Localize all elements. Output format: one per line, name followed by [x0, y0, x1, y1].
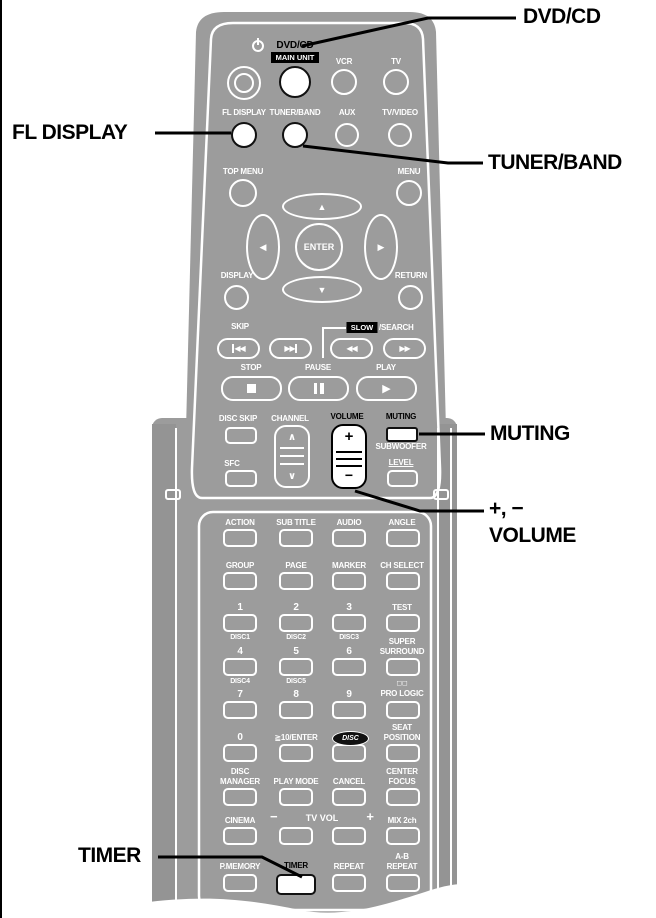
tv-vol-plus-icon: + — [366, 812, 374, 821]
callout-tuner-band: TUNER/BAND — [488, 151, 622, 175]
center-focus-label-line1: CENTER — [386, 767, 418, 776]
remote-control-diagram: DVD/CD MAIN UNIT VCR TV FL DISPLAY TUNER… — [0, 0, 656, 918]
disc-button[interactable] — [332, 744, 366, 762]
mix-2ch-button[interactable] — [386, 827, 420, 845]
digit-8-button[interactable] — [279, 701, 313, 719]
volume-rocker[interactable]: + − — [331, 424, 367, 489]
cinema-button[interactable] — [223, 827, 257, 845]
tv-label: TV — [391, 57, 401, 66]
channel-down-icon: ∨ — [276, 471, 308, 482]
center-focus-label-line2: FOCUS — [388, 777, 415, 786]
dolby-icon: ◻◻ — [396, 679, 407, 687]
pause-label: PAUSE — [305, 363, 331, 372]
volume-label: VOLUME — [330, 412, 363, 421]
group-label: GROUP — [226, 561, 254, 570]
subwoofer-level-button[interactable] — [387, 470, 418, 487]
skip-back-button[interactable]: ◀◀ — [217, 338, 260, 359]
power-button-inner — [234, 73, 254, 93]
up-arrow-icon: ▲ — [318, 202, 327, 212]
tv-video-label: TV/VIDEO — [382, 108, 418, 117]
stop-icon — [247, 384, 256, 393]
skip-forward-bar-icon — [295, 344, 297, 353]
return-button[interactable] — [398, 285, 423, 310]
ge10-enter-button[interactable] — [279, 744, 313, 762]
disc5-label: DISC5 — [286, 678, 306, 685]
digit-5-button[interactable] — [279, 658, 313, 676]
center-focus-button[interactable] — [386, 788, 420, 806]
right-button[interactable]: ▶ — [364, 214, 398, 280]
display-button[interactable] — [224, 285, 249, 310]
page-button[interactable] — [279, 572, 313, 590]
disc-manager-label-line2: MANAGER — [220, 777, 260, 786]
ge10-enter-label: ≧10/ENTER — [274, 733, 317, 742]
tv-vol-down-button[interactable] — [279, 827, 313, 845]
audio-button[interactable] — [332, 529, 366, 547]
digit-2-label: 2 — [293, 602, 298, 613]
repeat-button[interactable] — [332, 874, 366, 892]
digit-9-button[interactable] — [332, 701, 366, 719]
digit-3-label: 3 — [346, 602, 351, 613]
top-menu-button[interactable] — [229, 179, 257, 207]
display-label: DISPLAY — [221, 271, 254, 280]
dvd-cd-button[interactable] — [279, 66, 311, 98]
main-unit-badge: MAIN UNIT — [271, 52, 319, 63]
marker-label: MARKER — [332, 561, 366, 570]
disc3-label: DISC3 — [339, 634, 359, 641]
digit-5-label: 5 — [293, 646, 298, 657]
slow-search-forward-button[interactable]: ▶▶ — [383, 338, 426, 359]
ch-select-label: CH SELECT — [380, 561, 424, 570]
menu-label: MENU — [398, 167, 421, 176]
disc-skip-button[interactable] — [225, 427, 257, 444]
subtitle-button[interactable] — [279, 529, 313, 547]
play-mode-button[interactable] — [279, 788, 313, 806]
tuner-band-label: TUNER/BAND — [270, 108, 321, 117]
disc2-label: DISC2 — [286, 634, 306, 641]
disc-badge: DISC — [332, 731, 369, 746]
right-arrow-icon: ▶ — [378, 242, 385, 253]
super-surround-label-line2: SURROUND — [380, 647, 425, 656]
marker-button[interactable] — [332, 572, 366, 590]
up-button[interactable]: ▲ — [282, 193, 362, 220]
subwoofer-label-line2: LEVEL — [389, 458, 414, 467]
slow-badge: SLOW — [347, 322, 378, 333]
seat-position-label-line2: POSITION — [384, 733, 421, 742]
callout-volume-keys: +, − — [489, 497, 523, 521]
fl-display-label: FL DISPLAY — [222, 108, 266, 117]
aux-button[interactable] — [335, 123, 359, 147]
power-icon — [250, 37, 266, 53]
mix-2ch-label: MIX 2ch — [388, 816, 417, 825]
play-label: PLAY — [376, 363, 396, 372]
super-surround-label-line1: SUPER — [389, 637, 416, 646]
audio-label: AUDIO — [337, 518, 362, 527]
ab-repeat-button[interactable] — [386, 874, 420, 892]
digit-0-label: 0 — [237, 732, 242, 743]
enter-label: ENTER — [304, 242, 335, 252]
digit-2-button[interactable] — [279, 614, 313, 632]
skip-label: SKIP — [231, 322, 249, 331]
pause-icon — [314, 383, 324, 394]
disc-skip-label: DISC SKIP — [219, 414, 257, 423]
aux-label: AUX — [339, 108, 355, 117]
skip-forward-icon: ▶▶ — [284, 345, 294, 353]
stop-button[interactable] — [221, 376, 282, 401]
disc4-label: DISC4 — [230, 678, 250, 685]
volume-plus-icon: + — [333, 428, 365, 445]
angle-label: ANGLE — [388, 518, 415, 527]
tv-vol-minus-icon: − — [270, 812, 278, 821]
digit-1-label: 1 — [237, 602, 242, 613]
digit-6-button[interactable] — [332, 658, 366, 676]
ab-repeat-label-line1: A-B — [395, 852, 409, 861]
action-button[interactable] — [223, 529, 257, 547]
digit-4-label: 4 — [237, 646, 242, 657]
volume-minus-icon: − — [333, 467, 365, 483]
tv-vol-up-button[interactable] — [332, 827, 366, 845]
page-label: PAGE — [285, 561, 306, 570]
angle-button[interactable] — [386, 529, 420, 547]
repeat-label: REPEAT — [334, 862, 365, 871]
muting-label: MUTING — [386, 412, 416, 421]
down-button[interactable]: ▼ — [282, 276, 362, 303]
action-label: ACTION — [225, 518, 254, 527]
digit-7-label: 7 — [237, 689, 242, 700]
dvd-cd-button-label: DVD/CD — [276, 40, 313, 51]
enter-button[interactable]: ENTER — [295, 223, 343, 271]
cancel-label: CANCEL — [333, 777, 365, 786]
vcr-label: VCR — [336, 57, 352, 66]
subwoofer-label-line1: SUBWOOFER — [375, 442, 426, 451]
super-surround-button[interactable] — [386, 658, 420, 676]
cinema-label: CINEMA — [225, 816, 255, 825]
digit-0-button[interactable] — [223, 744, 257, 762]
tv-video-button[interactable] — [388, 123, 412, 147]
seat-position-button[interactable] — [386, 744, 420, 762]
tuner-band-button[interactable] — [282, 122, 308, 148]
subtitle-label: SUB TITLE — [276, 518, 316, 527]
tv-button[interactable] — [383, 69, 409, 95]
disc-manager-button[interactable] — [223, 788, 257, 806]
ch-select-button[interactable] — [386, 572, 420, 590]
pause-button[interactable] — [288, 376, 349, 401]
return-label: RETURN — [395, 271, 427, 280]
channel-rocker[interactable]: ∧ ∨ — [274, 425, 310, 488]
search-label: /SEARCH — [379, 323, 414, 332]
disc-manager-label-line1: DISC — [231, 767, 249, 776]
pro-logic-label: PRO LOGIC — [380, 689, 423, 698]
seat-position-label-line1: SEAT — [392, 723, 412, 732]
test-label: TEST — [392, 603, 412, 612]
group-button[interactable] — [223, 572, 257, 590]
tv-vol-label: − TV VOL + — [270, 812, 374, 823]
disc1-label: DISC1 — [230, 634, 250, 641]
test-button[interactable] — [386, 614, 420, 632]
p-memory-button[interactable] — [223, 874, 257, 892]
digit-1-button[interactable] — [223, 614, 257, 632]
skip-forward-button[interactable]: ▶▶ — [269, 338, 312, 359]
left-arrow-icon: ◀ — [260, 242, 267, 253]
callout-timer: TIMER — [78, 844, 141, 868]
callout-fl-display: FL DISPLAY — [12, 121, 127, 145]
sfc-label: SFC — [224, 459, 239, 468]
channel-label: CHANNEL — [271, 414, 309, 423]
fl-display-button[interactable] — [231, 122, 257, 148]
play-button[interactable]: ▶ — [356, 376, 417, 401]
stop-label: STOP — [241, 363, 262, 372]
cancel-button[interactable] — [332, 788, 366, 806]
timer-label: TIMER — [284, 861, 308, 870]
digit-4-button[interactable] — [223, 658, 257, 676]
digit-8-label: 8 — [293, 689, 298, 700]
slow-search-back-button[interactable]: ◀◀ — [330, 338, 373, 359]
fast-forward-icon: ▶▶ — [399, 345, 409, 353]
down-arrow-icon: ▼ — [318, 285, 327, 295]
callout-muting: MUTING — [490, 422, 570, 446]
channel-up-icon: ∧ — [276, 432, 308, 443]
play-icon: ▶ — [382, 382, 390, 395]
p-memory-label: P.MEMORY — [220, 862, 261, 871]
rewind-icon: ◀◀ — [346, 345, 356, 353]
ab-repeat-label-line2: REPEAT — [387, 862, 418, 871]
timer-button[interactable] — [276, 874, 316, 895]
digit-9-label: 9 — [346, 689, 351, 700]
digit-7-button[interactable] — [223, 701, 257, 719]
sfc-button[interactable] — [225, 470, 257, 487]
muting-button[interactable] — [386, 427, 418, 442]
callout-volume: VOLUME — [489, 524, 576, 548]
menu-button[interactable] — [396, 180, 422, 206]
pro-logic-button[interactable] — [386, 701, 420, 719]
digit-3-button[interactable] — [332, 614, 366, 632]
digit-6-label: 6 — [346, 646, 351, 657]
skip-back-icon: ◀◀ — [234, 345, 244, 353]
callout-dvd-cd: DVD/CD — [523, 5, 601, 29]
vcr-button[interactable] — [331, 69, 357, 95]
play-mode-label: PLAY MODE — [274, 777, 319, 786]
top-menu-label: TOP MENU — [223, 167, 263, 176]
